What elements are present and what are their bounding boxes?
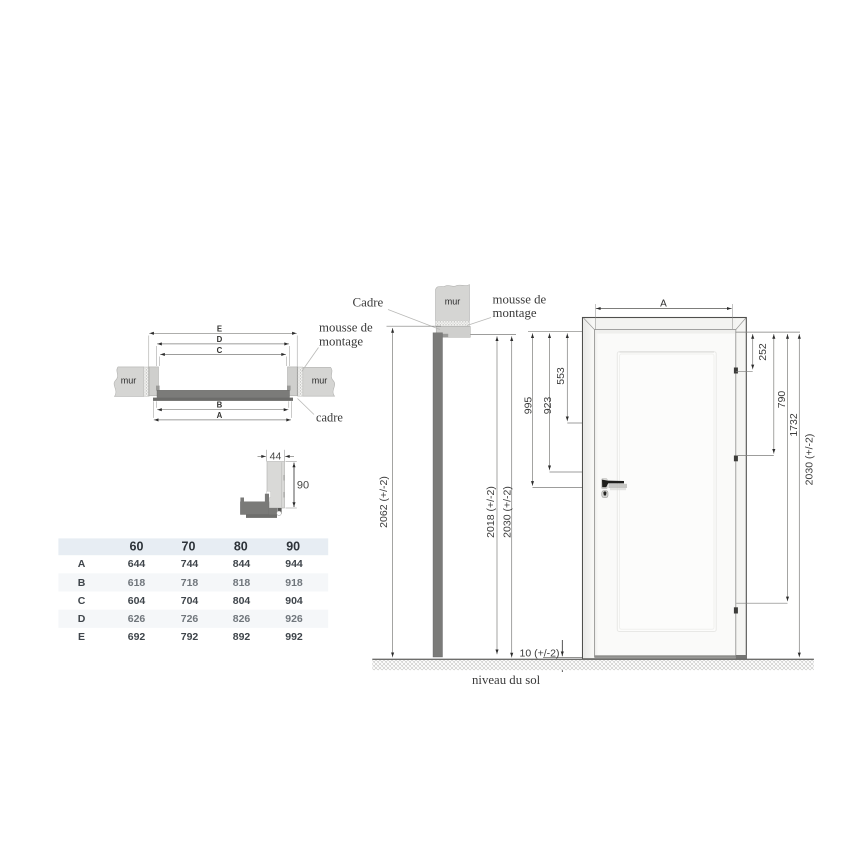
svg-text:Cadre: Cadre: [353, 296, 384, 310]
svg-text:553: 553: [555, 367, 567, 385]
svg-text:niveau du sol: niveau du sol: [472, 673, 541, 687]
svg-text:A: A: [660, 298, 667, 309]
svg-text:904: 904: [285, 595, 303, 607]
svg-text:B: B: [78, 577, 86, 589]
svg-text:montage: montage: [493, 306, 537, 320]
svg-text:644: 644: [128, 558, 146, 570]
svg-text:C: C: [217, 346, 223, 355]
svg-text:252: 252: [757, 343, 769, 361]
svg-text:995: 995: [523, 397, 535, 415]
svg-text:792: 792: [181, 631, 199, 643]
svg-text:618: 618: [128, 577, 146, 589]
svg-text:992: 992: [285, 631, 303, 643]
svg-text:E: E: [217, 324, 222, 333]
svg-text:A: A: [78, 558, 86, 570]
svg-text:D: D: [78, 613, 86, 625]
svg-text:744: 744: [181, 558, 199, 570]
svg-text:montage: montage: [319, 335, 363, 349]
svg-text:60: 60: [130, 539, 144, 553]
svg-text:E: E: [78, 631, 85, 643]
svg-text:718: 718: [181, 577, 199, 589]
svg-text:923: 923: [542, 397, 554, 415]
svg-text:cadre: cadre: [316, 411, 343, 425]
svg-text:2062 (+/-2): 2062 (+/-2): [378, 476, 390, 528]
svg-text:726: 726: [181, 613, 199, 625]
svg-text:2018 (+/-2): 2018 (+/-2): [485, 486, 497, 538]
svg-text:844: 844: [233, 558, 251, 570]
svg-text:mousse de: mousse de: [493, 292, 547, 306]
svg-text:70: 70: [182, 539, 196, 553]
svg-text:C: C: [78, 595, 86, 607]
svg-text:804: 804: [233, 595, 251, 607]
svg-text:A: A: [217, 411, 223, 420]
svg-text:2030 (+/-2): 2030 (+/-2): [502, 486, 514, 538]
svg-text:mur: mur: [121, 376, 137, 386]
svg-text:mur: mur: [445, 297, 461, 307]
svg-text:704: 704: [181, 595, 199, 607]
svg-text:mur: mur: [312, 376, 328, 386]
svg-text:918: 918: [285, 577, 303, 589]
svg-text:90: 90: [297, 479, 309, 491]
svg-text:818: 818: [233, 577, 251, 589]
svg-text:mousse de: mousse de: [319, 321, 373, 335]
svg-text:2030 (+/-2): 2030 (+/-2): [804, 434, 816, 486]
svg-text:D: D: [217, 335, 223, 344]
svg-text:826: 826: [233, 613, 251, 625]
svg-text:790: 790: [776, 391, 788, 409]
svg-text:892: 892: [233, 631, 251, 643]
svg-text:604: 604: [128, 595, 146, 607]
svg-text:80: 80: [234, 539, 248, 553]
svg-text:926: 926: [285, 613, 303, 625]
svg-text:692: 692: [128, 631, 146, 643]
svg-text:B: B: [217, 401, 223, 410]
svg-text:944: 944: [285, 558, 303, 570]
svg-text:90: 90: [286, 539, 300, 553]
svg-text:44: 44: [270, 451, 282, 463]
svg-text:1732: 1732: [788, 413, 800, 437]
svg-text:626: 626: [128, 613, 146, 625]
svg-text:10 (+/-2): 10 (+/-2): [520, 648, 560, 660]
